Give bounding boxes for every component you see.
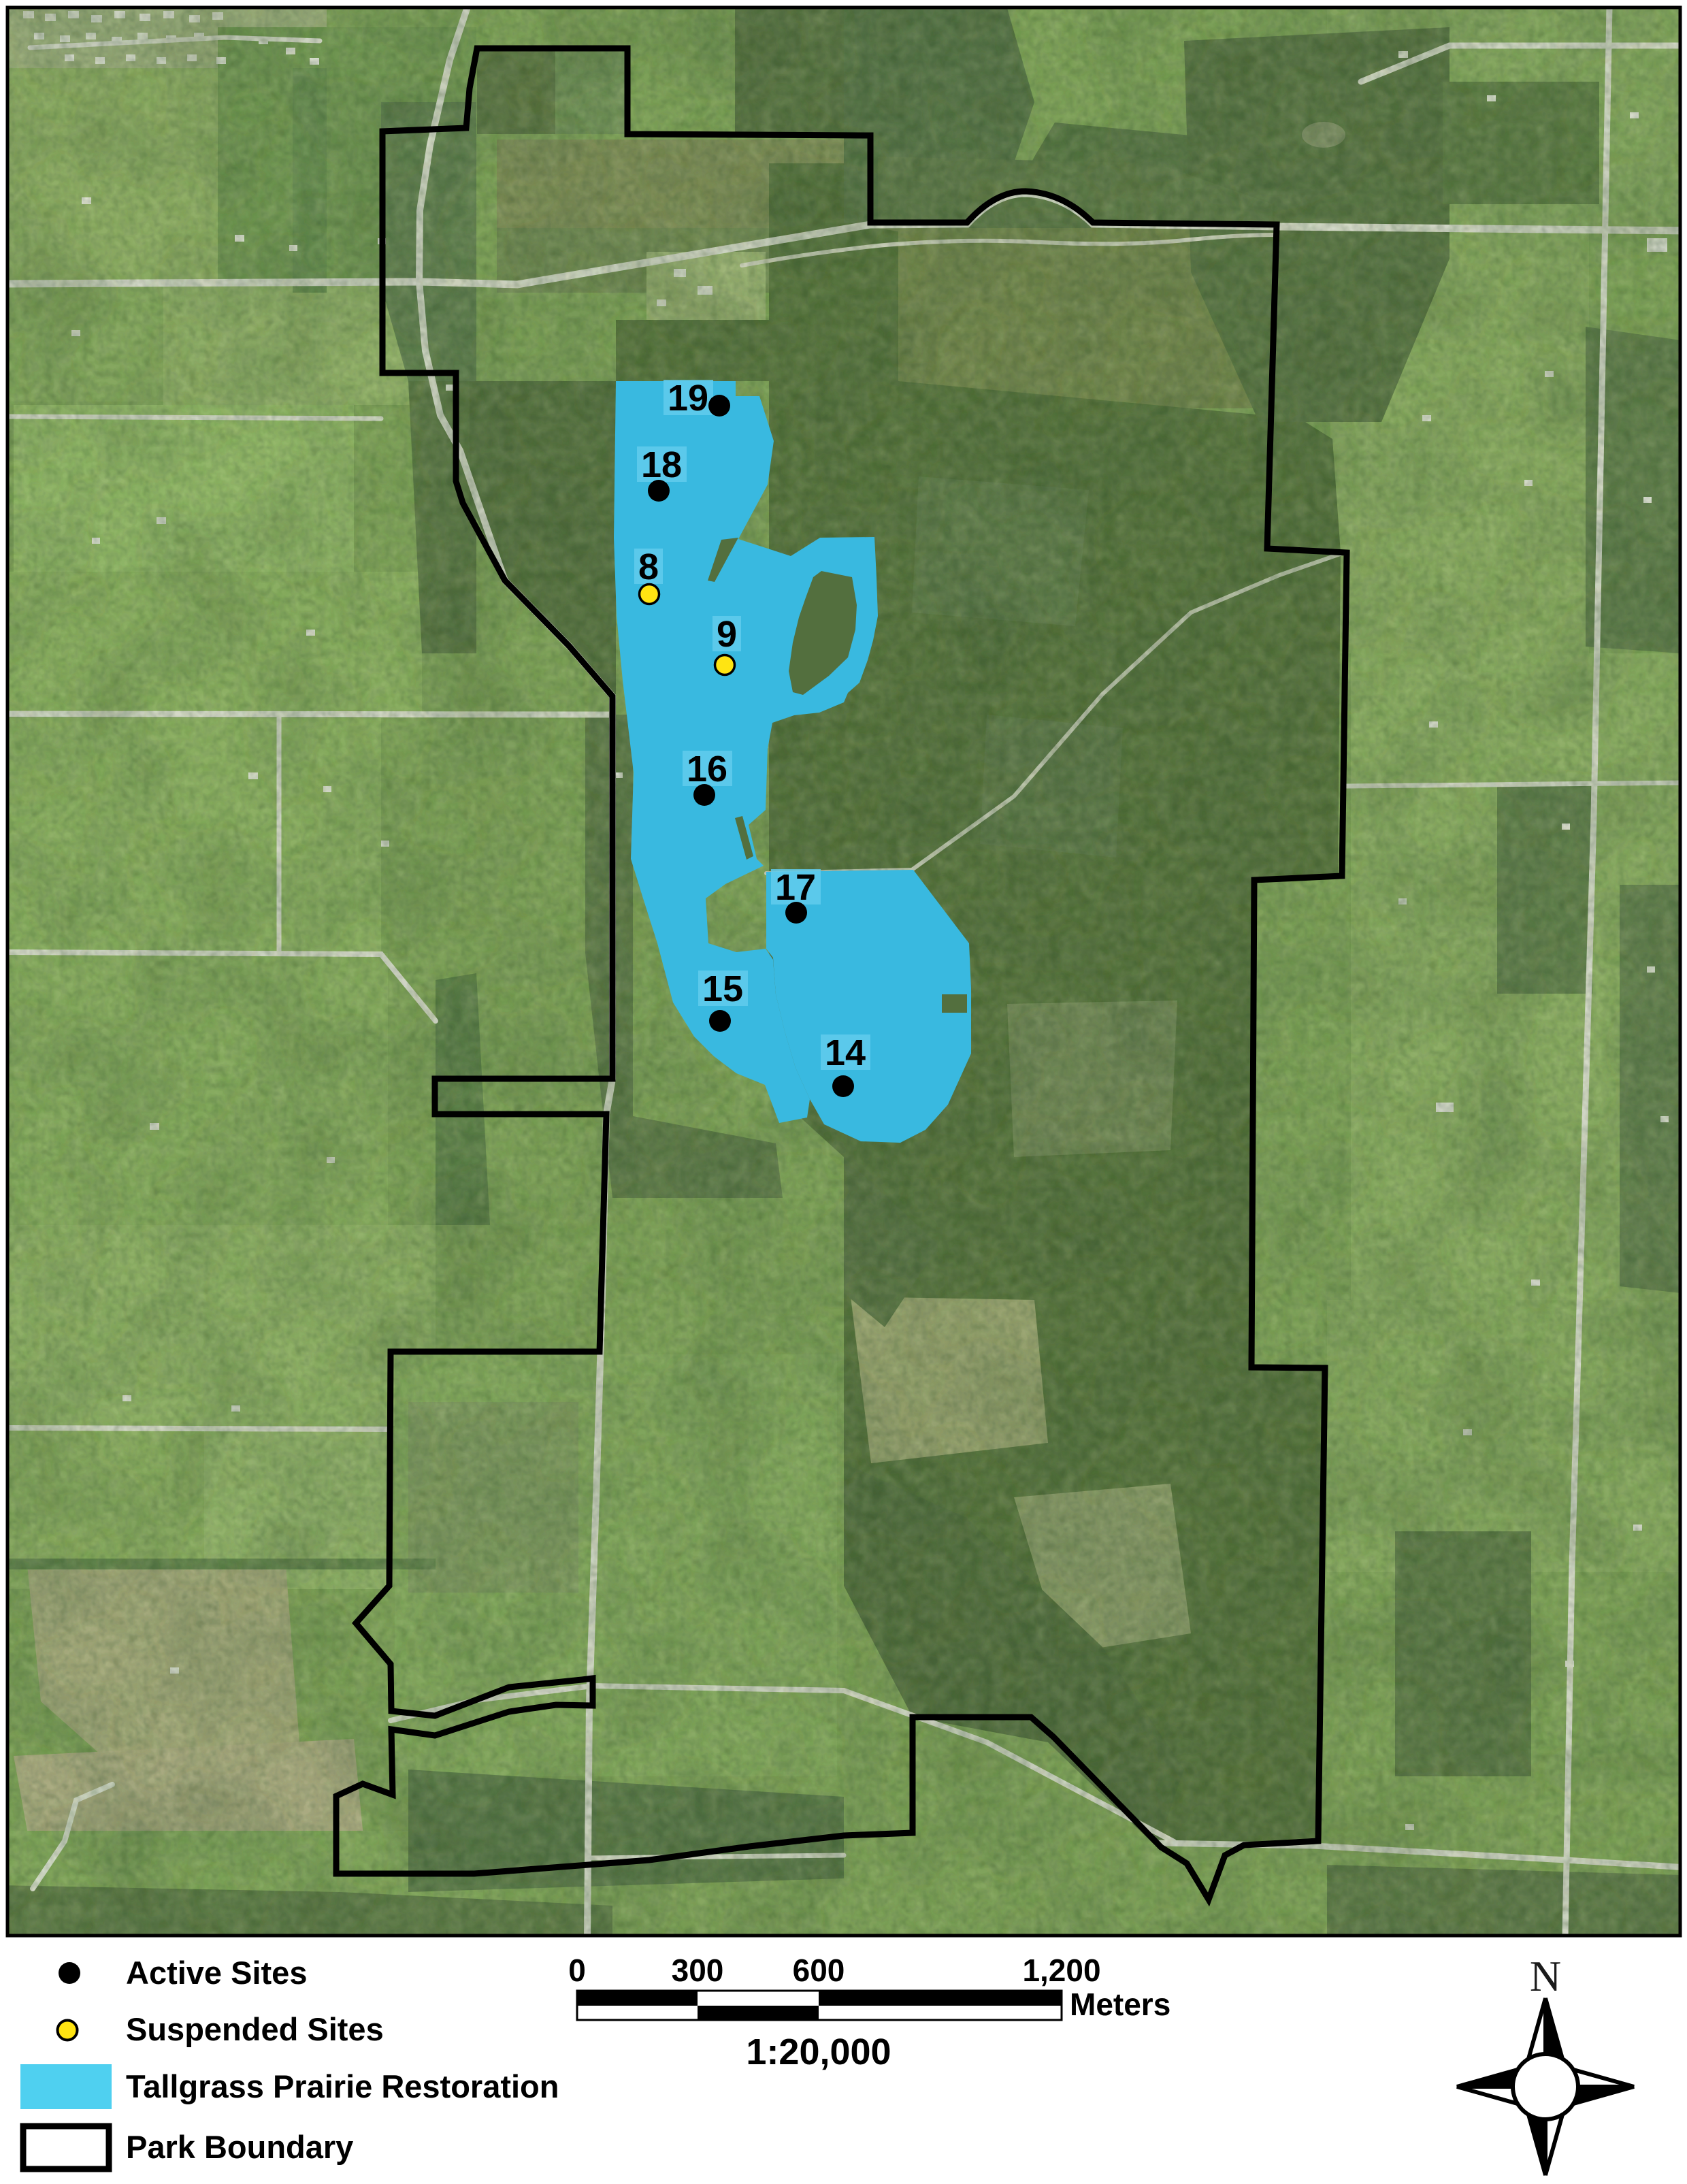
svg-text:Active Sites: Active Sites <box>126 1955 307 1991</box>
svg-text:9: 9 <box>717 614 737 655</box>
svg-text:8: 8 <box>638 547 659 587</box>
svg-text:Park Boundary: Park Boundary <box>126 2129 353 2165</box>
svg-text:17: 17 <box>775 867 816 908</box>
svg-text:Tallgrass Prairie Restoration: Tallgrass Prairie Restoration <box>126 2068 559 2104</box>
svg-text:15: 15 <box>702 968 743 1009</box>
svg-text:1,200: 1,200 <box>1022 1953 1100 1988</box>
svg-text:N: N <box>1530 1952 1561 2000</box>
svg-text:300: 300 <box>672 1953 724 1988</box>
svg-text:19: 19 <box>668 378 708 419</box>
svg-text:14: 14 <box>825 1032 866 1073</box>
svg-text:1:20,000: 1:20,000 <box>746 2032 891 2072</box>
svg-text:Meters: Meters <box>1070 1987 1170 2022</box>
svg-text:0: 0 <box>568 1953 586 1988</box>
svg-text:18: 18 <box>641 444 682 485</box>
svg-text:Suspended Sites: Suspended Sites <box>126 2011 384 2047</box>
svg-text:16: 16 <box>687 749 727 789</box>
svg-text:600: 600 <box>793 1953 845 1988</box>
